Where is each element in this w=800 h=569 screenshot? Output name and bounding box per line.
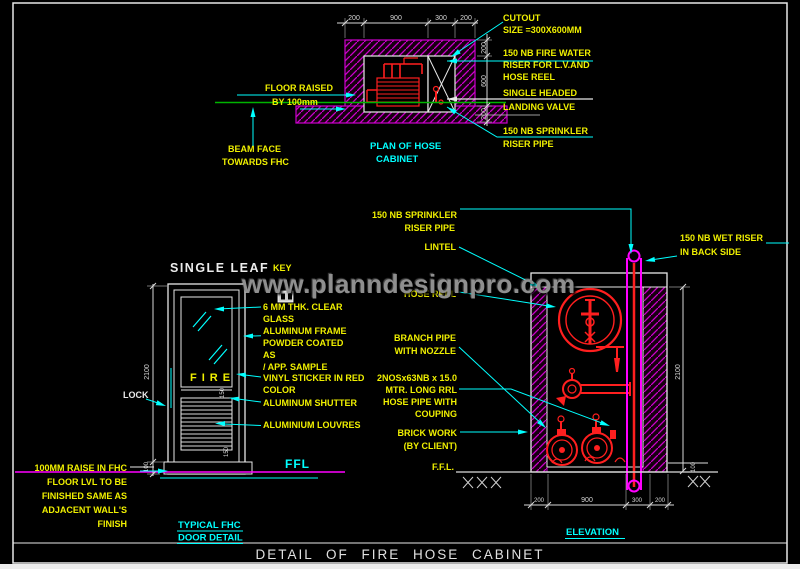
beam-face-label-1: BEAM FACE bbox=[228, 144, 281, 154]
elev-height-dim: 2100 bbox=[675, 364, 682, 380]
wet-riser-label-2: IN BACK SIDE bbox=[680, 247, 741, 257]
brick-work-label-2: (BY CLIENT) bbox=[404, 441, 457, 451]
elev-left-brick-column bbox=[531, 287, 547, 472]
plan-dim-200a: 200 bbox=[348, 15, 360, 22]
frame-label-4: / APP. SAMPLE bbox=[263, 362, 328, 372]
cutout-label-2: SIZE =300X600MM bbox=[503, 25, 582, 35]
shutter-label: ALUMINUM SHUTTER bbox=[263, 398, 357, 408]
raise-note-4: ADJACENT WALL'S bbox=[42, 505, 127, 515]
door-title: SINGLE LEAF bbox=[170, 261, 269, 275]
frame-label-1: ALUMINUM FRAME bbox=[263, 326, 347, 336]
lock-leader bbox=[146, 399, 158, 403]
wet-riser-label-1: 150 NB WET RISER bbox=[680, 233, 764, 243]
floor-raised-label-2: BY 100mm bbox=[272, 97, 318, 107]
elevation-caption: ELEVATION bbox=[566, 527, 619, 538]
hose-pipe-label-3: HOSE PIPE WITH bbox=[383, 397, 457, 407]
plan-dim-r200a: 200 bbox=[481, 42, 488, 54]
ground-hatch-left bbox=[463, 477, 501, 488]
branch-pipe-label-2: WITH NOZZLE bbox=[395, 346, 457, 356]
cutout-leader bbox=[452, 22, 503, 56]
key-symbol bbox=[278, 291, 293, 302]
landing-valve-label-2: LANDING VALVE bbox=[503, 102, 575, 112]
door-dimension-left: 2100 100 bbox=[144, 283, 168, 477]
glass-label-1: 6 MM THK. CLEAR bbox=[263, 302, 343, 312]
fire-water-label-3: HOSE REEL bbox=[503, 72, 556, 82]
elev-dim-200b: 200 bbox=[655, 498, 666, 504]
vinyl-label-2: COLOR bbox=[263, 385, 296, 395]
sprinkler-plan-label-1: 150 NB SPRINKLER bbox=[503, 126, 589, 136]
frame-label-3: AS bbox=[263, 350, 276, 360]
elev-dim-200a: 200 bbox=[534, 498, 545, 504]
lock-label: LOCK bbox=[123, 390, 149, 400]
landing-valve-label-1: SINGLE HEADED bbox=[503, 88, 578, 98]
elev-right-brick-column bbox=[643, 287, 667, 472]
sprinkler-elev-leader bbox=[460, 209, 631, 245]
plan-dim-r200b: 200 bbox=[481, 108, 488, 120]
shutter-leader bbox=[238, 399, 261, 402]
glass-label-2: GLASS bbox=[263, 314, 294, 324]
door-ffl-label: FFL bbox=[285, 457, 310, 471]
glass-leader bbox=[223, 307, 261, 309]
cutout-label-1: CUTOUT bbox=[503, 13, 541, 23]
plan-caption-2: CABINET bbox=[376, 154, 418, 165]
vinyl-label-1: VINYL STICKER IN RED bbox=[263, 373, 365, 383]
plan-dim-900: 900 bbox=[390, 15, 402, 22]
floor-raised-label-1: FLOOR RAISED bbox=[265, 83, 334, 93]
plan-caption-1: PLAN OF HOSE bbox=[370, 141, 441, 152]
beam-face-label-2: TOWARDS FHC bbox=[222, 157, 289, 167]
glass-reflection-marks bbox=[193, 312, 227, 364]
vinyl-arrow bbox=[236, 373, 246, 378]
frame-label-2: POWDER COATED bbox=[263, 338, 344, 348]
elev-dimension-bottom: 200 900 300 200 bbox=[524, 474, 674, 510]
beam-face-arrow bbox=[251, 107, 256, 117]
hose-pipe-label-4: COUPING bbox=[415, 409, 457, 419]
brick-work-arrow bbox=[518, 430, 528, 435]
plan-dim-200b: 200 bbox=[460, 15, 472, 22]
sprinkler-elev-label-1: 150 NB SPRINKLER bbox=[372, 210, 458, 220]
door-caption-1: TYPICAL FHC bbox=[178, 520, 241, 531]
plan-view: 200 900 300 200 200 600 200 bbox=[215, 15, 540, 126]
hose-reel-label: HOSE REEL bbox=[404, 289, 457, 299]
brick-work-label-1: BRICK WORK bbox=[398, 428, 458, 438]
raise-note-1: 100MM RAISE IN FHC bbox=[34, 463, 127, 473]
lintel-label: LINTEL bbox=[425, 242, 457, 252]
glass-arrow bbox=[214, 307, 224, 312]
wet-riser-leader bbox=[654, 256, 677, 260]
sprinkler-elev-label-2: RISER PIPE bbox=[404, 223, 455, 233]
footer: DETAIL OF FIRE HOSE CABINET bbox=[255, 547, 544, 562]
cad-sheet: 200 900 300 200 200 600 200 CUTOUT SIZE … bbox=[0, 0, 800, 569]
branch-pipe-label-1: BRANCH PIPE bbox=[394, 333, 456, 343]
elev-dimension-right: 2100 bbox=[669, 284, 690, 474]
elev-dim-300: 300 bbox=[632, 498, 643, 504]
wet-riser-arrow bbox=[645, 257, 655, 262]
hose-pipe-label-1: 2NOSx63NB x 15.0 bbox=[377, 373, 457, 383]
fire-water-label-1: 150 NB FIRE WATER bbox=[503, 48, 591, 58]
hose-pipe-label-2: MTR. LONG RRL bbox=[386, 385, 458, 395]
lintel-leader bbox=[459, 247, 532, 283]
elev-raise-dim: 100 bbox=[691, 461, 697, 472]
louvres-label: ALUMINIUM LOUVRES bbox=[263, 420, 361, 430]
elev-ffl-label: F.F.L. bbox=[432, 462, 454, 472]
raise-note-5: FINISH bbox=[97, 519, 127, 529]
lock-arrow bbox=[156, 400, 166, 406]
plan-dim-r600: 600 bbox=[481, 75, 488, 87]
raise-note-2: FLOOR LVL TO BE bbox=[47, 477, 127, 487]
fire-sticker-text: FIRE bbox=[190, 372, 235, 384]
branch-pipe-leader bbox=[459, 347, 539, 421]
door-height-dim: 2100 bbox=[144, 364, 151, 380]
door-panel-dim-1: 150 bbox=[220, 387, 226, 398]
key-label: KEY bbox=[273, 263, 292, 273]
sprinkler-plan-label-2: RISER PIPE bbox=[503, 139, 554, 149]
raise-note-3: FINISHED SAME AS bbox=[42, 491, 127, 501]
elev-dim-900: 900 bbox=[581, 497, 593, 504]
door-panel-dim-2: 150 bbox=[224, 446, 230, 457]
plan-dim-300: 300 bbox=[435, 15, 447, 22]
cad-canvas: 200 900 300 200 200 600 200 CUTOUT SIZE … bbox=[0, 0, 800, 569]
plan-dimension-top: 200 900 300 200 bbox=[337, 15, 478, 38]
sheet-title: DETAIL OF FIRE HOSE CABINET bbox=[255, 547, 544, 562]
vinyl-leader bbox=[245, 375, 261, 377]
ground-hatch-right bbox=[688, 476, 710, 487]
door-caption-2: DOOR DETAIL bbox=[178, 533, 243, 544]
